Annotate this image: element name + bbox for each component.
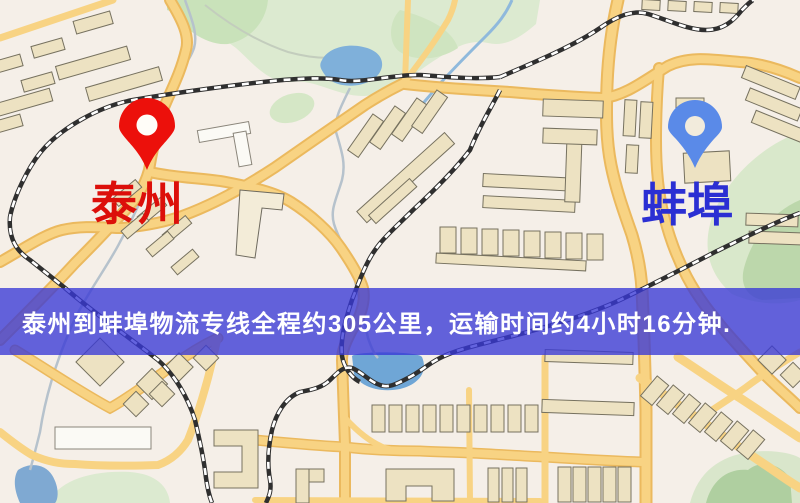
origin-pin-hole xyxy=(137,115,158,136)
destination-label: 蚌埠 xyxy=(641,180,733,231)
map-canvas: 泰州 蚌埠 xyxy=(0,0,800,503)
destination-pin-hole xyxy=(685,116,705,136)
map-screenshot: 泰州 蚌埠 泰州到蚌埠物流专线全程约305公里，运输时间约4小时16分钟. xyxy=(0,0,800,503)
origin-label: 泰州 xyxy=(91,179,183,230)
route-info-banner: 泰州到蚌埠物流专线全程约305公里，运输时间约4小时16分钟. xyxy=(0,288,800,355)
route-info-text: 泰州到蚌埠物流专线全程约305公里，运输时间约4小时16分钟. xyxy=(22,304,731,339)
